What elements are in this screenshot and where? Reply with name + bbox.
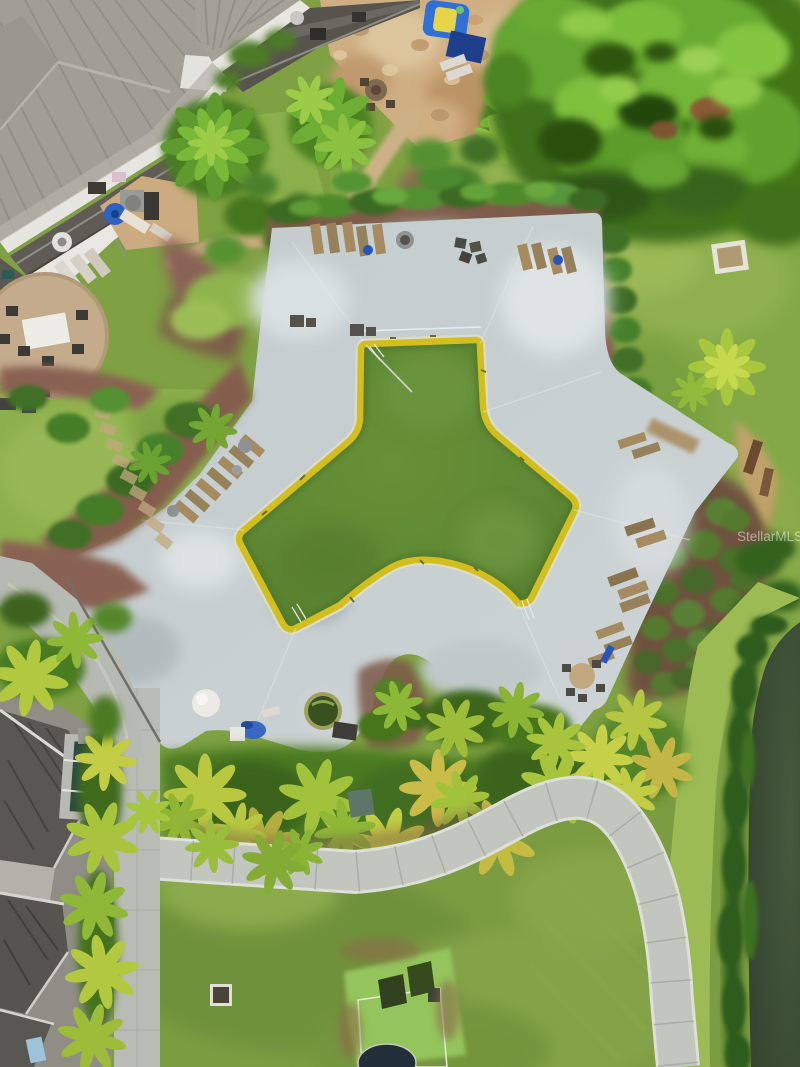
svg-text:StellarMLS: StellarMLS: [737, 529, 800, 544]
